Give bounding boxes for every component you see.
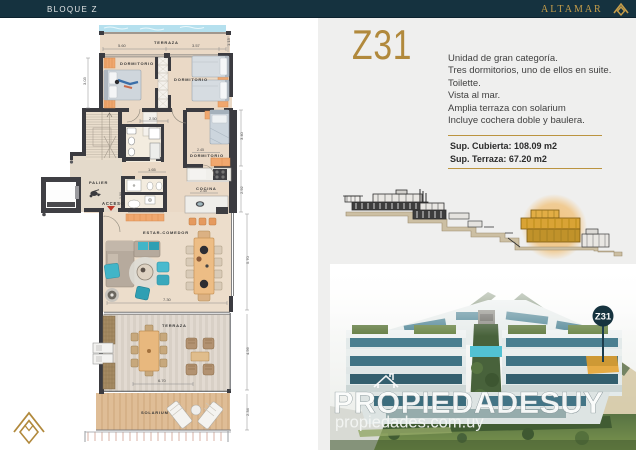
svg-text:3.57: 3.57: [192, 43, 201, 48]
svg-text:SOLARIUM: SOLARIUM: [141, 410, 169, 415]
svg-text:5.60: 5.60: [118, 43, 127, 48]
svg-text:DORMITORIO: DORMITORIO: [190, 153, 224, 158]
svg-text:1.13: 1.13: [226, 37, 231, 46]
svg-text:2.25: 2.25: [141, 207, 150, 212]
svg-text:1.65: 1.65: [148, 167, 157, 172]
svg-text:2.92: 2.92: [239, 185, 244, 194]
svg-text:TERRAZA: TERRAZA: [154, 40, 179, 45]
svg-text:5.70: 5.70: [245, 255, 250, 264]
svg-text:3.03: 3.03: [82, 76, 87, 85]
svg-text:4.56: 4.56: [245, 346, 250, 355]
svg-text:3.40: 3.40: [239, 131, 244, 140]
svg-text:DORMITORIO: DORMITORIO: [120, 61, 154, 66]
svg-text:2.50: 2.50: [149, 116, 158, 121]
svg-text:PALIER: PALIER: [89, 180, 108, 185]
svg-text:DORMITORIO: DORMITORIO: [174, 77, 208, 82]
svg-text:ESTAR-COMEDOR: ESTAR-COMEDOR: [143, 230, 189, 235]
svg-text:2.45: 2.45: [197, 148, 204, 152]
svg-text:1.90: 1.90: [119, 192, 123, 199]
svg-text:6.70: 6.70: [158, 378, 167, 383]
svg-text:2.40: 2.40: [200, 189, 207, 193]
svg-text:2.34: 2.34: [245, 407, 250, 416]
svg-text:ACCESO: ACCESO: [102, 201, 125, 206]
svg-text:TERRAZA: TERRAZA: [162, 323, 187, 328]
svg-text:7.30: 7.30: [163, 297, 172, 302]
